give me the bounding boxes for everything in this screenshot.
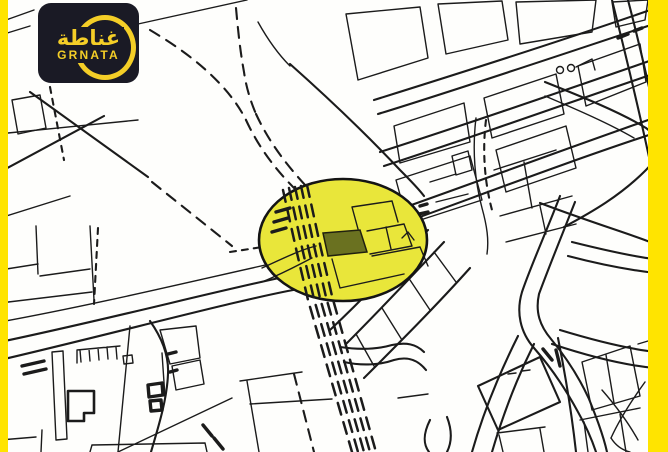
plot-cluster-ne (419, 118, 576, 254)
frame-left-bar (0, 0, 8, 452)
listing-map-image: غناطة GRNATA (0, 0, 668, 452)
streets-midright (519, 196, 656, 452)
frame-right-bar (648, 0, 668, 452)
logo-arabic-text: غناطة (53, 27, 124, 49)
logo-latin-text: GRNATA (55, 49, 122, 62)
highlighted-plot (323, 230, 367, 256)
grnata-logo-badge: غناطة GRNATA (38, 3, 139, 83)
